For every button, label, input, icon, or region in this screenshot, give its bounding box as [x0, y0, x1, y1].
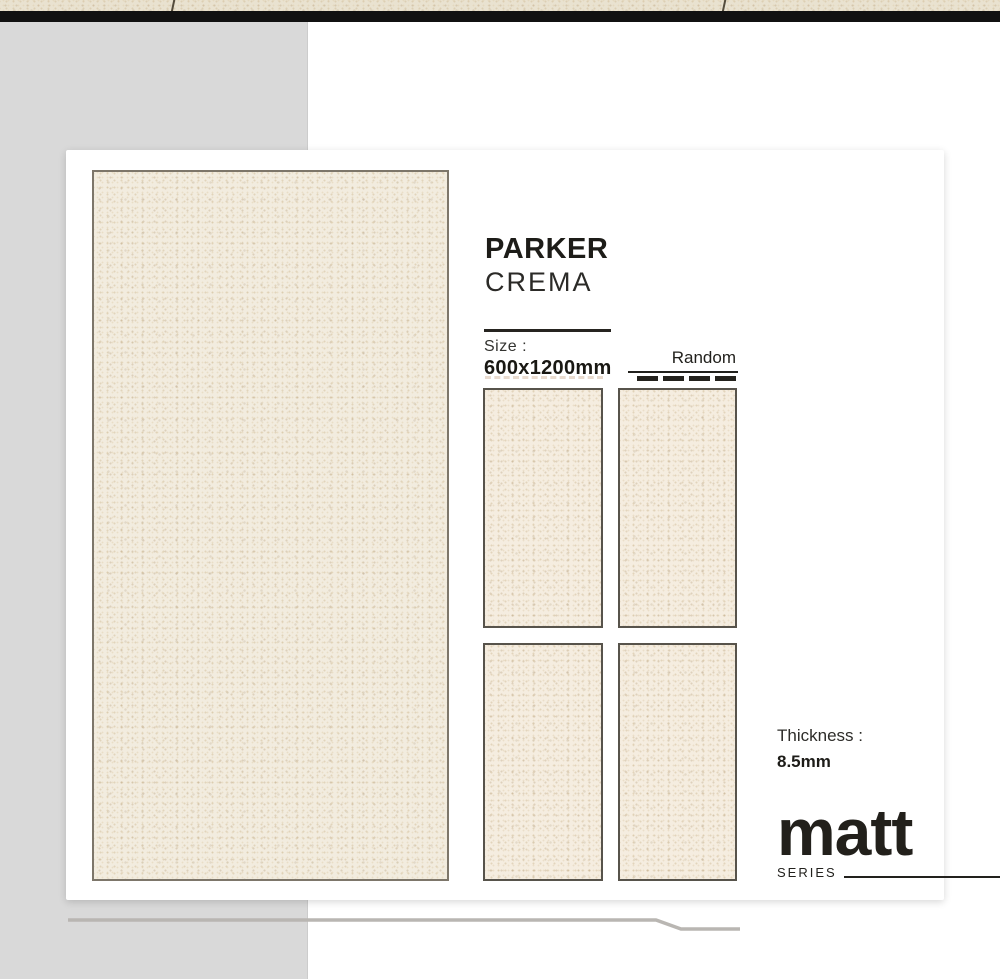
grout-line-icon — [721, 0, 727, 11]
faint-dotted-line — [485, 376, 603, 379]
thickness-label: Thickness : — [777, 726, 863, 746]
series-logo: matt SERIES — [777, 799, 1000, 879]
series-underline — [844, 876, 1000, 878]
pattern-block: Random — [628, 348, 738, 381]
main-tile-swatch — [92, 170, 449, 881]
black-divider-bar — [0, 11, 1000, 22]
dash-icon — [637, 376, 658, 381]
random-dashes-icon — [628, 376, 738, 381]
tile-photo-strip — [0, 0, 1000, 11]
product-card: PARKER CREMA Size : 600x1200mm Random Th… — [66, 150, 944, 900]
pattern-label: Random — [628, 348, 738, 373]
title-block: PARKER CREMA — [485, 235, 608, 296]
tile-face-swatch — [483, 643, 603, 881]
tile-face-swatch — [618, 388, 737, 628]
dash-icon — [715, 376, 736, 381]
product-sheet-page: PARKER CREMA Size : 600x1200mm Random Th… — [0, 0, 1000, 979]
tile-face-swatch — [618, 643, 737, 881]
product-name: PARKER — [485, 235, 608, 264]
random-faces-grid — [483, 388, 737, 881]
series-name: matt — [777, 799, 1000, 865]
title-divider — [484, 329, 611, 332]
series-label: SERIES — [777, 866, 837, 879]
tile-face-swatch — [483, 388, 603, 628]
dash-icon — [663, 376, 684, 381]
dash-icon — [689, 376, 710, 381]
product-variant: CREMA — [485, 269, 608, 296]
thickness-value: 8.5mm — [777, 752, 831, 772]
size-label: Size : — [484, 338, 527, 356]
grout-line-icon — [170, 0, 176, 11]
